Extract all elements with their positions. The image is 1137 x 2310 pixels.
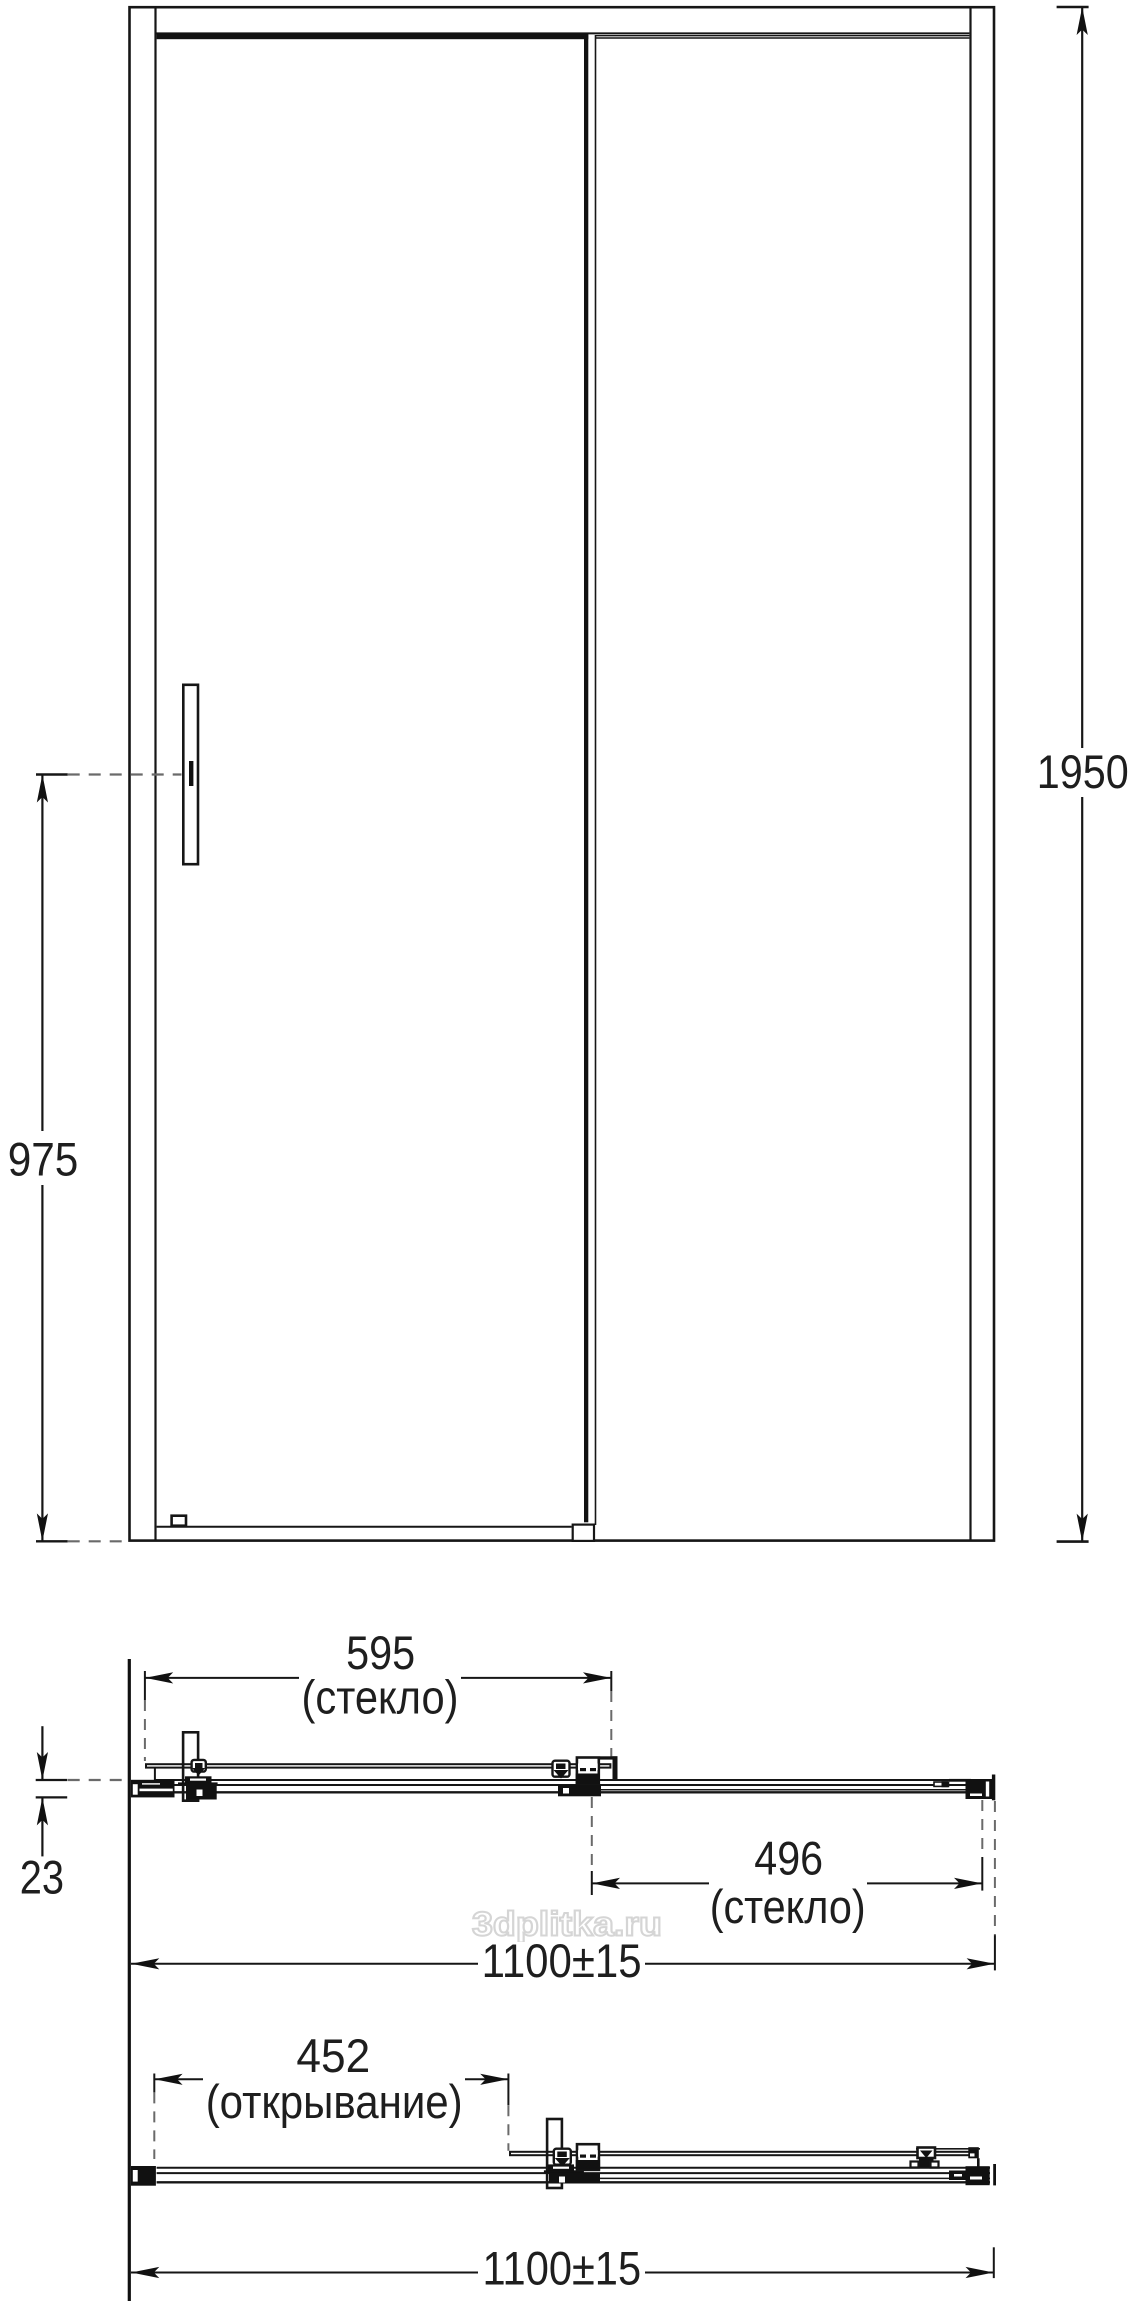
svg-text:23: 23 [20,1851,64,1904]
svg-text:1100±15: 1100±15 [483,2241,642,2294]
svg-text:975: 975 [8,1133,79,1186]
svg-text:1100±15: 1100±15 [482,1934,642,1987]
svg-text:1950: 1950 [1037,745,1129,798]
svg-text:496: 496 [754,1832,823,1885]
svg-text:(стекло): (стекло) [302,1671,459,1724]
svg-text:(стекло): (стекло) [710,1880,866,1933]
svg-text:(открывание): (открывание) [206,2075,463,2128]
